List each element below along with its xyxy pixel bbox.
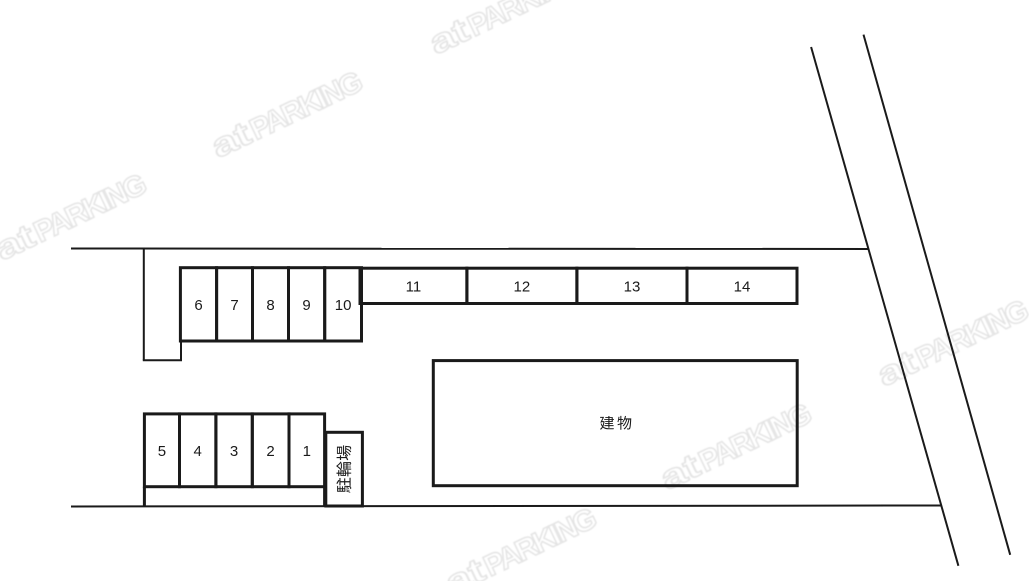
svg-text:13: 13 xyxy=(624,278,641,295)
svg-text:1: 1 xyxy=(303,443,311,460)
svg-text:8: 8 xyxy=(266,297,274,314)
svg-text:14: 14 xyxy=(734,278,751,295)
svg-text:5: 5 xyxy=(158,443,166,460)
svg-text:3: 3 xyxy=(230,443,238,460)
svg-text:11: 11 xyxy=(406,278,422,295)
svg-text:4: 4 xyxy=(194,443,202,460)
svg-text:12: 12 xyxy=(514,278,531,295)
svg-text:10: 10 xyxy=(335,297,352,314)
svg-text:6: 6 xyxy=(194,297,202,314)
svg-text:2: 2 xyxy=(266,443,274,460)
svg-text:7: 7 xyxy=(230,297,238,314)
svg-text:9: 9 xyxy=(302,297,310,314)
